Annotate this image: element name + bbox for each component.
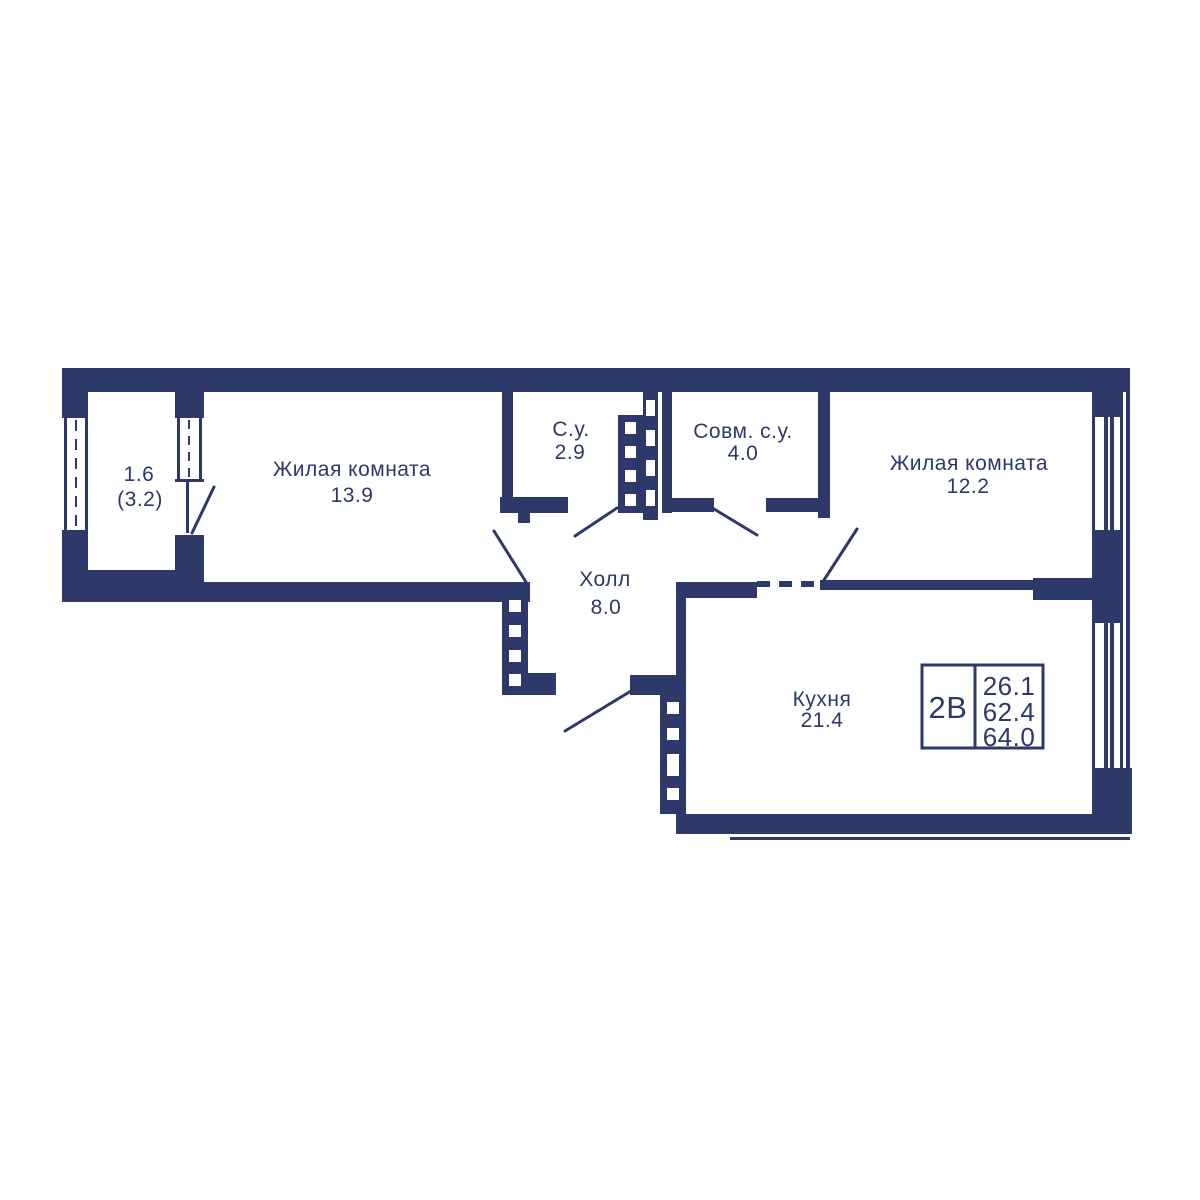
door-living1-icon: [494, 531, 526, 582]
window-cap: [175, 415, 204, 418]
wall-bathroom-stub: [518, 513, 530, 523]
door-living2-icon: [824, 529, 857, 580]
bathroom-label: С.у.: [552, 418, 589, 441]
window-cap: [62, 530, 88, 533]
balcony-area: 1.6: [124, 463, 155, 486]
hatch-dash: [667, 754, 679, 776]
wall-balcony-partition-top: [175, 390, 204, 418]
hatch-dash: [646, 400, 655, 416]
hatch-dash: [509, 625, 521, 637]
living1-label: Жилая комната: [273, 458, 431, 481]
hatch-dash: [509, 600, 521, 612]
facade-line-bottom: [730, 837, 1130, 840]
hatch-dash: [625, 446, 636, 458]
window-pane: [1104, 417, 1108, 530]
floor-plan-page: 1.6 (3.2) Жилая комната 13.9 С.у. 2.9 Со…: [0, 0, 1200, 1200]
window-balcony-partition-icon: [175, 415, 204, 482]
hatch-dash: [509, 650, 521, 662]
hatch-dash: [667, 702, 679, 714]
hatch-dash: [646, 430, 655, 446]
door-bathroom-icon: [575, 508, 617, 536]
wall-corridor-left-stub: [528, 673, 556, 695]
wall-living1-bottom: [175, 582, 530, 602]
wall-right-mid: [1092, 528, 1123, 623]
apartment-type: 2В: [929, 690, 968, 725]
hatch-dash: [646, 460, 655, 476]
window-pane: [177, 418, 180, 482]
door-entrance-icon: [565, 691, 631, 731]
hatch-dash: [625, 494, 636, 506]
wall-kitchen-left-upper: [676, 598, 686, 675]
window-cap: [62, 415, 88, 418]
wall-bathroom-left: [502, 390, 513, 497]
wall-kitchen-top: [676, 582, 757, 598]
hatch-dash: [667, 728, 679, 740]
window-pane: [1120, 623, 1123, 768]
wall-balcony-partition-bottom: [175, 535, 204, 572]
window-pane: [1092, 623, 1095, 768]
hatch-dash: [667, 788, 679, 800]
wall-right-top: [1092, 368, 1123, 417]
kitchen-area: 21.4: [801, 709, 844, 732]
wall-kitchen-bottom: [676, 814, 1132, 834]
door-balcony-icon: [192, 487, 214, 533]
wall-living2-bottom-thick: [1033, 578, 1097, 600]
total-area-value: 64.0: [983, 722, 1036, 752]
info-box: 2В 26.1 62.4 64.0: [922, 665, 1043, 752]
floor-plan-drawing: 1.6 (3.2) Жилая комната 13.9 С.у. 2.9 Со…: [0, 0, 1200, 1200]
hatch-dash: [625, 422, 636, 434]
room-labels: 1.6 (3.2) Жилая комната 13.9 С.у. 2.9 Со…: [117, 418, 1048, 732]
kitchen-label: Кухня: [793, 688, 852, 711]
hatch-dash: [509, 674, 521, 686]
balcony-door-frame: [186, 482, 189, 533]
living1-area: 13.9: [331, 484, 374, 507]
wall-bathroom2-left: [662, 390, 672, 513]
balcony-area-total: (3.2): [117, 488, 163, 511]
living2-label: Жилая комната: [890, 452, 1048, 475]
hall-area: 8.0: [591, 596, 622, 619]
window-pane: [1120, 417, 1123, 530]
hatch-dash: [646, 490, 655, 506]
wall-top: [62, 368, 1130, 392]
bathroom2-label: Совм. с.у.: [693, 420, 792, 443]
door-bathroom2-icon: [714, 509, 757, 535]
window-pane: [1104, 623, 1108, 768]
wall-left-lower: [62, 528, 88, 574]
hatch-dash: [625, 470, 636, 482]
window-living2-icon: [1092, 417, 1123, 530]
window-pane: [1110, 417, 1114, 530]
facade-line-right: [1126, 368, 1130, 834]
window-pane: [1110, 623, 1114, 768]
window-balcony-left-icon: [62, 415, 88, 533]
wall-bathroom2-bottom-left: [662, 498, 714, 512]
living2-area: 12.2: [947, 475, 990, 498]
wall-living2-left: [818, 390, 830, 518]
window-kitchen-icon: [1092, 623, 1123, 768]
wall-bathroom-bottom: [500, 497, 568, 513]
window-pane: [64, 418, 67, 530]
window-pane: [1092, 417, 1095, 530]
bathroom-area: 2.9: [555, 441, 586, 464]
window-pane: [85, 418, 88, 530]
wall-living2-bottom-thin: [820, 580, 1033, 590]
bathroom2-area: 4.0: [728, 442, 759, 465]
wall-corridor-right-stub: [630, 675, 662, 695]
hall-label: Холл: [579, 568, 631, 591]
window-pane: [199, 418, 202, 482]
